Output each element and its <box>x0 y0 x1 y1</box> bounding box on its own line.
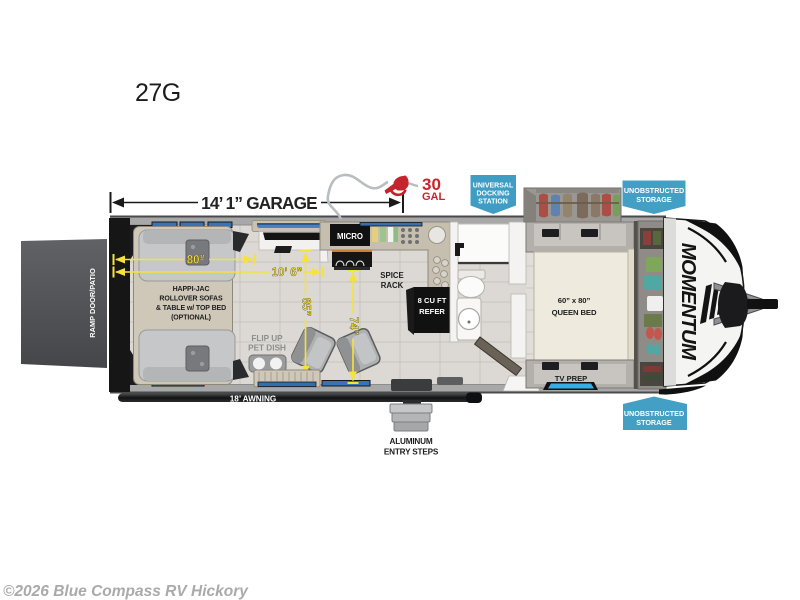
svg-text:SPICE: SPICE <box>380 271 403 280</box>
svg-text:MOMENTUM: MOMENTUM <box>677 243 700 361</box>
svg-text:ENTRY STEPS: ENTRY STEPS <box>384 448 439 457</box>
svg-text:8 CU FT: 8 CU FT <box>418 296 447 305</box>
svg-text:60” x 80”: 60” x 80” <box>558 296 591 305</box>
svg-text:UNIVERSAL: UNIVERSAL <box>473 183 514 190</box>
svg-text:85”: 85” <box>300 298 312 317</box>
svg-text:UNOBSTRUCTED: UNOBSTRUCTED <box>624 186 684 195</box>
svg-text:QUEEN BED: QUEEN BED <box>552 308 597 317</box>
svg-text:UNOBSTRUCTED: UNOBSTRUCTED <box>624 409 684 418</box>
svg-text:STATION: STATION <box>478 199 508 206</box>
svg-text:ROLLOVER SOFAS: ROLLOVER SOFAS <box>159 296 223 303</box>
svg-text:DOCKING: DOCKING <box>476 191 510 198</box>
svg-text:PET DISH: PET DISH <box>248 344 286 353</box>
svg-text:& TABLE w/ TOP BED: & TABLE w/ TOP BED <box>156 305 226 312</box>
svg-text:STORAGE: STORAGE <box>636 418 672 427</box>
svg-text:HAPPI-JAC: HAPPI-JAC <box>173 286 210 293</box>
svg-text:TV PREP: TV PREP <box>555 374 588 383</box>
svg-text:14’ 1” GARAGE: 14’ 1” GARAGE <box>201 193 317 213</box>
svg-text:(OPTIONAL): (OPTIONAL) <box>171 315 211 322</box>
svg-text:FLIP UP: FLIP UP <box>251 334 283 343</box>
svg-text:MICRO: MICRO <box>337 232 363 241</box>
svg-text:74”: 74” <box>347 317 359 336</box>
svg-text:©2026 Blue Compass RV Hickory: ©2026 Blue Compass RV Hickory <box>3 583 249 600</box>
svg-text:27G: 27G <box>135 79 181 107</box>
svg-text:10’ 6”: 10’ 6” <box>272 267 303 279</box>
svg-text:STORAGE: STORAGE <box>636 195 672 204</box>
svg-text:ALUMINUM: ALUMINUM <box>390 437 433 446</box>
svg-text:GAL: GAL <box>422 191 446 203</box>
svg-text:18’ AWNING: 18’ AWNING <box>230 395 277 404</box>
svg-text:REFER: REFER <box>419 307 445 316</box>
svg-text:RAMP DOOR/PATIO: RAMP DOOR/PATIO <box>88 268 97 338</box>
svg-text:80”: 80” <box>187 255 206 267</box>
svg-text:RACK: RACK <box>381 281 404 290</box>
